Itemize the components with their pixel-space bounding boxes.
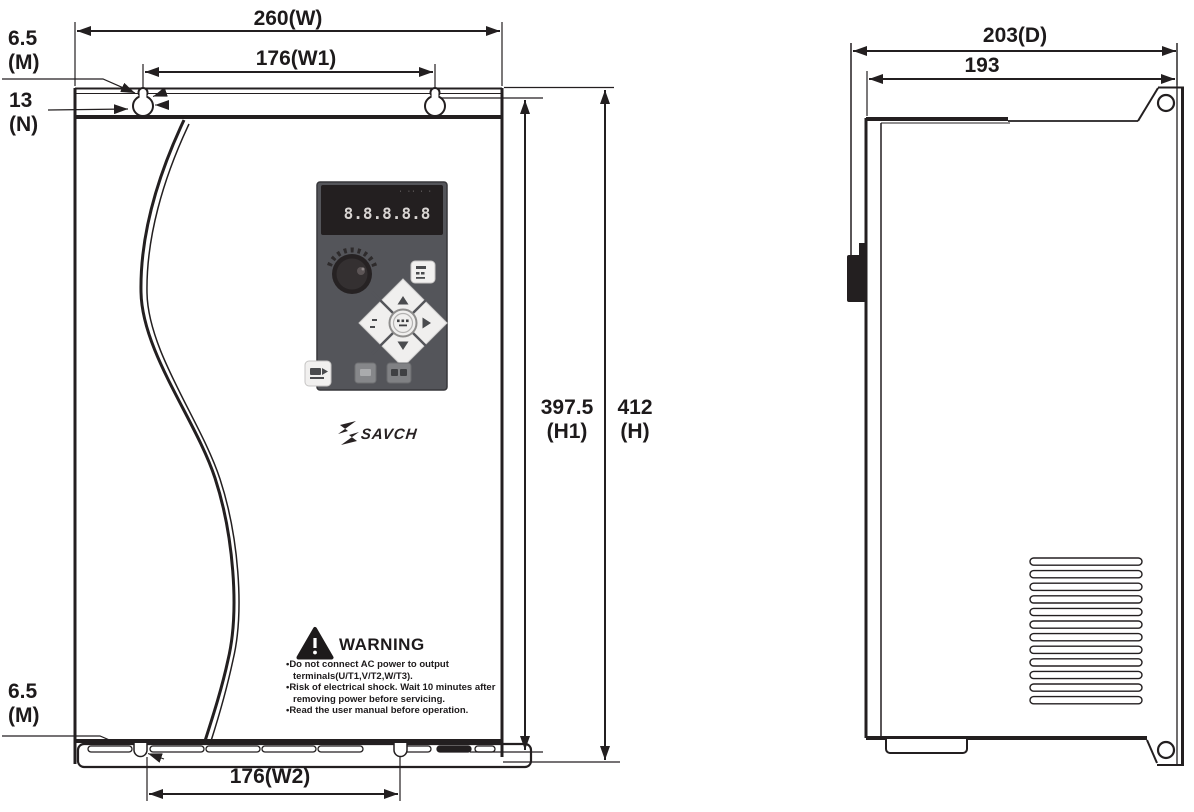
mounting-keyhole-right xyxy=(425,88,445,116)
warning-list: •Do not connect AC power to output termi… xyxy=(286,659,498,717)
side-top-bracket-chamfer xyxy=(1138,88,1158,121)
cover-seam-curve-outer xyxy=(141,120,234,741)
display-indicator-marks: · ·· · · xyxy=(375,188,433,195)
display-digits: 8.8.8.8.8 xyxy=(340,204,434,223)
dim-label-width1: 176(W1) xyxy=(256,47,337,71)
warning-title: WARNING xyxy=(339,635,425,655)
side-bottom-mounting-hole xyxy=(1158,742,1174,758)
side-latch xyxy=(847,243,866,302)
side-bottom-bracket-chamfer xyxy=(1147,740,1157,763)
mounting-notch-left xyxy=(134,743,147,757)
nav-pad xyxy=(359,279,447,367)
warning-item: •Do not connect AC power to output termi… xyxy=(286,659,498,682)
warning-triangle-icon xyxy=(299,629,332,658)
side-foot xyxy=(886,739,967,753)
keypad-bottom-button-left xyxy=(305,361,331,386)
warning-item: •Read the user manual before operation. xyxy=(286,705,498,717)
drawing-linework xyxy=(0,0,1194,812)
mounting-notch-right xyxy=(394,743,407,757)
dim-label-height1: 397.5 (H1) xyxy=(541,396,594,444)
dim-label-m-bottom: 6.5 (M) xyxy=(8,680,39,728)
dim-label-width: 260(W) xyxy=(254,7,323,31)
side-view xyxy=(847,43,1184,765)
prg-button xyxy=(411,261,435,283)
cover-seam-curve-inner xyxy=(147,124,239,741)
brand-logo-text: SAVCH xyxy=(360,426,418,443)
brand-logo-icon xyxy=(338,421,359,445)
leader-n xyxy=(48,109,128,110)
dim-label-depth-inner: 193 xyxy=(964,54,999,78)
keypad-bottom-button-right xyxy=(387,363,411,383)
dim-label-n: 13 (N) xyxy=(9,89,38,137)
keypad-bottom-button-middle xyxy=(355,363,376,383)
left-key-mark xyxy=(372,319,377,321)
dim-label-depth: 203(D) xyxy=(983,24,1047,48)
warning-item: •Risk of electrical shock. Wait 10 minut… xyxy=(286,682,498,705)
dimension-drawing: 260(W) 176(W1) 6.5 (M) 13 (N) 397.5 (H1)… xyxy=(0,0,1194,812)
side-top-mounting-hole xyxy=(1158,95,1174,111)
dim-label-m-top: 6.5 (M) xyxy=(8,27,39,75)
mounting-keyhole-left xyxy=(133,88,153,116)
dim-label-width2: 176(W2) xyxy=(230,765,311,789)
dim-label-height: 412 (H) xyxy=(617,396,652,444)
vent-grille xyxy=(1030,558,1142,704)
